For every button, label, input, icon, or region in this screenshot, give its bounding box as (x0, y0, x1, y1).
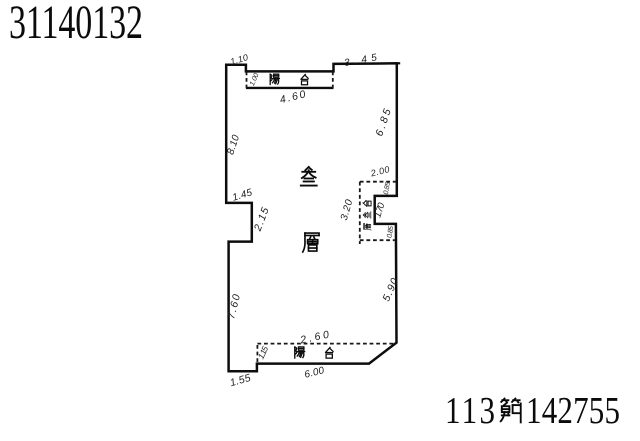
svg-text:4.60: 4.60 (279, 88, 307, 106)
svg-text:2.00: 2.00 (369, 164, 391, 179)
svg-text:6.00: 6.00 (303, 365, 325, 381)
svg-text:2.15: 2.15 (252, 206, 272, 234)
svg-text:0.85: 0.85 (383, 182, 392, 196)
svg-text:3.20: 3.20 (339, 198, 355, 222)
svg-text:1.00: 1.00 (249, 72, 261, 87)
svg-text:1.45: 1.45 (231, 187, 254, 203)
svg-text:0.85: 0.85 (386, 226, 395, 239)
svg-text:5.90: 5.90 (380, 276, 401, 303)
svg-text:3.45: 3.45 (343, 52, 378, 69)
svg-text:6.85: 6.85 (373, 107, 394, 138)
svg-text:142755: 142755 (526, 390, 620, 432)
svg-text:8.10: 8.10 (225, 133, 242, 156)
svg-text:1.55: 1.55 (229, 372, 253, 389)
svg-text:113: 113 (445, 390, 495, 432)
svg-text:31140132: 31140132 (9, 0, 143, 48)
